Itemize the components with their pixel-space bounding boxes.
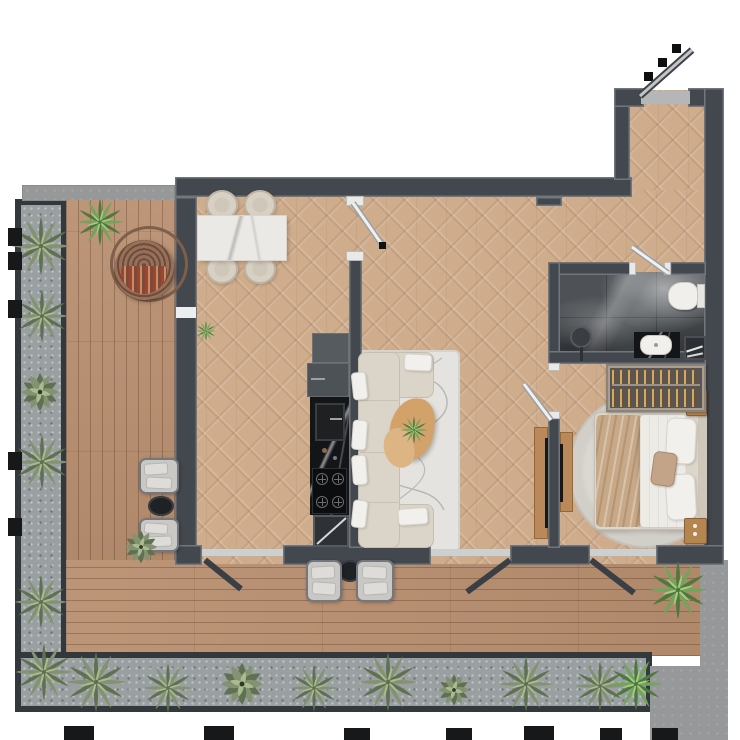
lounge-chair-cushion	[146, 476, 173, 489]
sofa-pillow	[351, 420, 368, 451]
kitchen-tall-cabinet	[312, 333, 349, 363]
refrigerator-handle	[311, 378, 325, 380]
terrace-side-table	[148, 496, 174, 516]
indoor-potted-plant	[195, 320, 217, 342]
wall-bathroom-left	[548, 262, 560, 364]
nightstand-knob	[693, 532, 697, 536]
tv-screen-living	[545, 438, 548, 528]
wall-bathroom-top-left	[548, 262, 632, 275]
hob-burner	[332, 496, 344, 508]
kitchen-sink	[315, 403, 345, 441]
bed-headboard	[698, 410, 707, 532]
shower-arm	[580, 347, 583, 361]
tv-screen-bedroom	[560, 444, 563, 502]
door-swing-mark	[658, 58, 667, 67]
edge-light-block	[8, 228, 22, 246]
wall-top-pilaster	[536, 197, 562, 206]
lounge-chair-cushion	[312, 581, 337, 596]
edge-light-block	[524, 726, 554, 740]
wall-bathroom-top-right	[670, 262, 706, 275]
wall-bedroom-partition	[548, 418, 560, 548]
edge-light-block	[204, 726, 234, 740]
living-door-jamb-bottom	[347, 252, 363, 260]
kitchen-utensil	[333, 456, 337, 460]
wall-bottom-partition-block	[510, 545, 590, 565]
bed-plant	[63, 649, 129, 715]
bed-plant	[12, 364, 68, 420]
sofa-pillow	[397, 507, 428, 526]
hob-burner	[316, 496, 328, 508]
terrace-potted-plant	[74, 196, 126, 248]
terrace-door-threshold-a	[202, 549, 283, 556]
terrace-door-threshold-c	[590, 549, 656, 556]
kitchen-open-unit	[313, 515, 349, 547]
edge-light-block	[344, 728, 370, 740]
kitchen-refrigerator	[307, 363, 349, 397]
edge-light-block	[8, 452, 22, 470]
edge-light-block	[8, 518, 22, 536]
window-slit-left-wall	[176, 307, 196, 318]
wall-bottom-corner-left	[175, 545, 202, 565]
basin-drain	[654, 343, 658, 347]
bedroom-door-jamb-top	[549, 364, 559, 370]
dining-table	[198, 216, 286, 260]
living-door-jamb-top	[347, 197, 363, 205]
door-swing-mark	[672, 44, 681, 53]
bed-accent-pillow	[650, 450, 678, 487]
bed-plant	[288, 662, 340, 714]
door-swing-mark	[644, 72, 653, 81]
sofa-pillow	[351, 499, 369, 528]
deck-potted-plant	[646, 558, 710, 622]
hob-burner	[332, 473, 344, 485]
edge-light-block	[8, 300, 22, 318]
deck-shrub	[117, 523, 165, 571]
bed-blanket-beige	[596, 415, 642, 527]
bed-plant	[211, 653, 273, 715]
kitchen-utensil	[322, 448, 327, 453]
terrace-door-threshold-b	[431, 549, 510, 556]
lounge-chair-cushion	[362, 565, 388, 579]
nightstand-bottom	[684, 518, 707, 544]
bed-plant	[356, 650, 420, 714]
edge-light-block	[8, 252, 22, 270]
toilet-tank	[697, 284, 705, 308]
lounge-chair-cushion	[363, 581, 389, 596]
bathroom-door-jamb-right	[665, 263, 670, 274]
wall-entry-top-left	[614, 88, 644, 107]
sofa-seat-seam	[360, 400, 398, 401]
entry-threshold	[641, 91, 690, 104]
lounge-chair-cushion	[311, 565, 336, 579]
floor-plan-render	[0, 0, 740, 740]
nightstand-knob	[693, 524, 697, 528]
bed-plant	[496, 654, 556, 714]
kitchen-faucet	[330, 418, 342, 420]
wall-top	[175, 177, 632, 197]
edge-light-block	[446, 728, 472, 740]
sofa-pillow	[351, 371, 369, 400]
bathroom-door-jamb-left	[630, 263, 635, 274]
bed-plant	[431, 667, 477, 713]
bedroom-door-jamb-bottom	[549, 412, 559, 418]
hob-burner	[316, 473, 328, 485]
coffee-table-plant	[399, 415, 429, 445]
sofa-pillow	[404, 353, 433, 371]
bed-plant	[12, 573, 70, 631]
edge-light-block	[64, 726, 94, 740]
wardrobe-hangers-row	[612, 370, 700, 386]
bed-plant	[607, 655, 665, 713]
shower-head	[570, 326, 592, 348]
bed-plant	[141, 661, 195, 715]
edge-light-block	[600, 728, 622, 740]
toilet-bowl	[668, 282, 698, 310]
wall-right	[704, 88, 724, 565]
wall-bathroom-bottom	[548, 351, 706, 364]
sofa-pillow	[351, 455, 368, 486]
edge-light-block	[652, 728, 678, 740]
lounge-chair-cushion	[144, 462, 169, 476]
wardrobe-hangers-row	[612, 389, 700, 407]
